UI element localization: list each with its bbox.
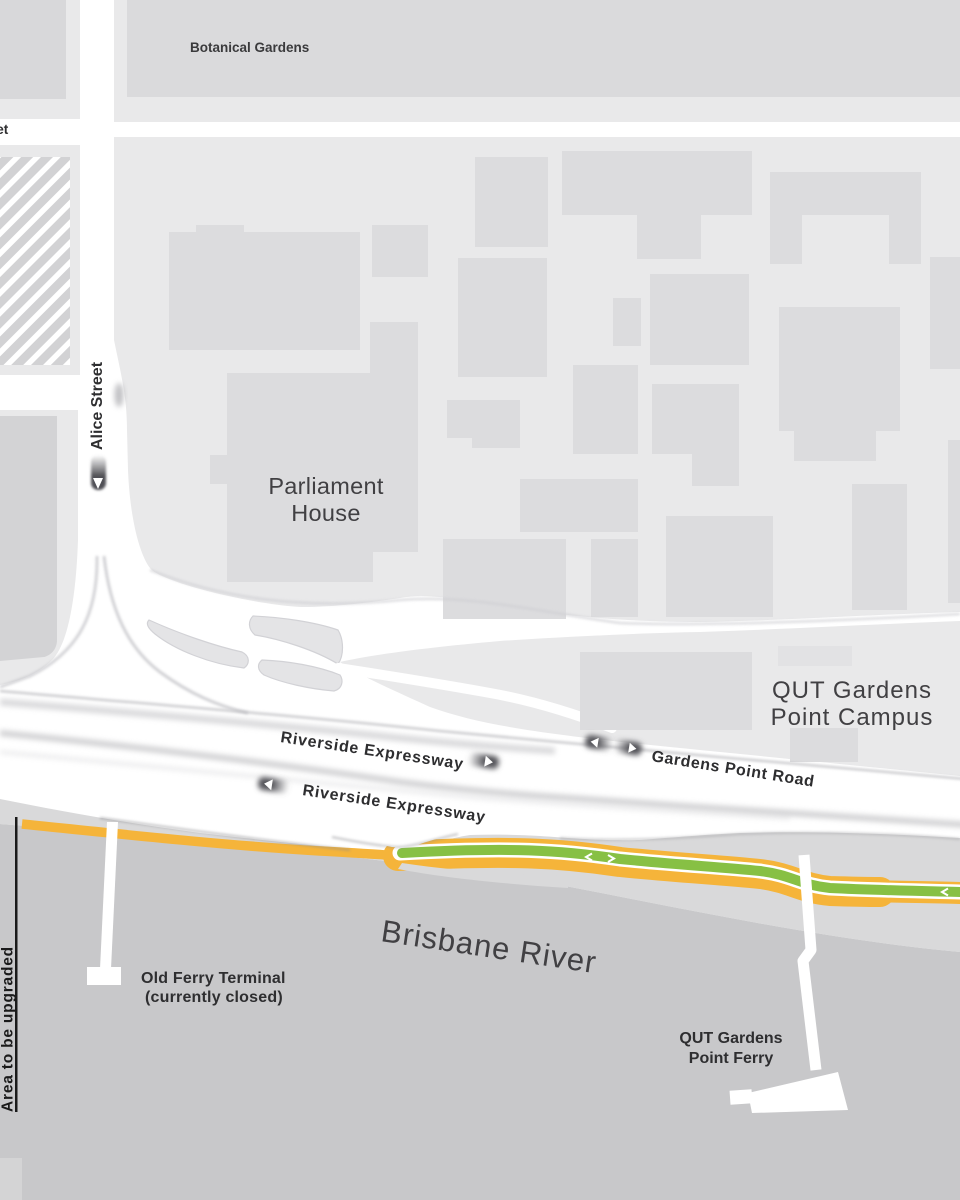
svg-text:Botanical Gardens: Botanical Gardens bbox=[190, 40, 309, 55]
svg-text:Parliament: Parliament bbox=[268, 473, 383, 499]
svg-text:treet: treet bbox=[0, 122, 9, 137]
svg-text:Point Ferry: Point Ferry bbox=[689, 1050, 774, 1067]
svg-text:(currently closed): (currently closed) bbox=[145, 989, 283, 1006]
svg-text:QUT Gardens: QUT Gardens bbox=[772, 677, 932, 704]
svg-text:House: House bbox=[291, 500, 360, 526]
svg-text:Old Ferry Terminal: Old Ferry Terminal bbox=[141, 970, 286, 987]
svg-text:Point Campus: Point Campus bbox=[771, 704, 934, 731]
svg-text:Area to be upgraded: Area to be upgraded bbox=[0, 946, 17, 1112]
svg-text:QUT Gardens: QUT Gardens bbox=[679, 1030, 782, 1047]
svg-text:Alice Street: Alice Street bbox=[89, 361, 106, 450]
